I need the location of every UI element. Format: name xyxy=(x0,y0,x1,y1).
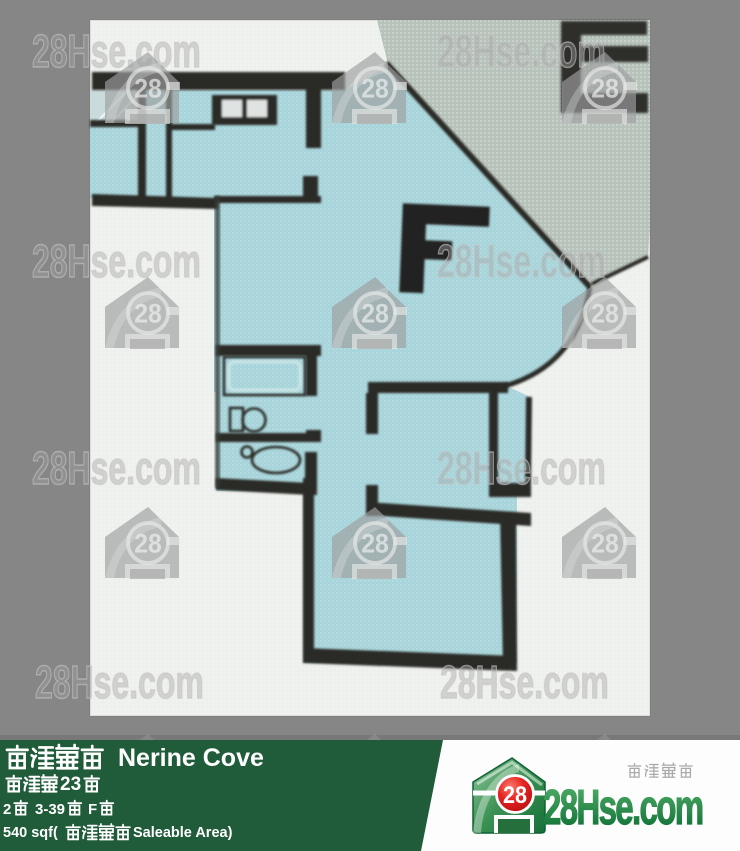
svg-text:23: 23 xyxy=(60,774,81,795)
svg-text:2: 2 xyxy=(3,801,11,818)
svg-text:28: 28 xyxy=(503,781,527,808)
svg-text:28Hse.com: 28Hse.com xyxy=(543,779,702,834)
svg-text:F: F xyxy=(88,801,97,818)
svg-text:3-39: 3-39 xyxy=(35,801,65,818)
svg-text:Nerine Cove: Nerine Cove xyxy=(118,744,264,772)
svg-text:540 sqf(: 540 sqf( xyxy=(3,825,58,841)
svg-text:Saleable Area): Saleable Area) xyxy=(133,825,233,841)
